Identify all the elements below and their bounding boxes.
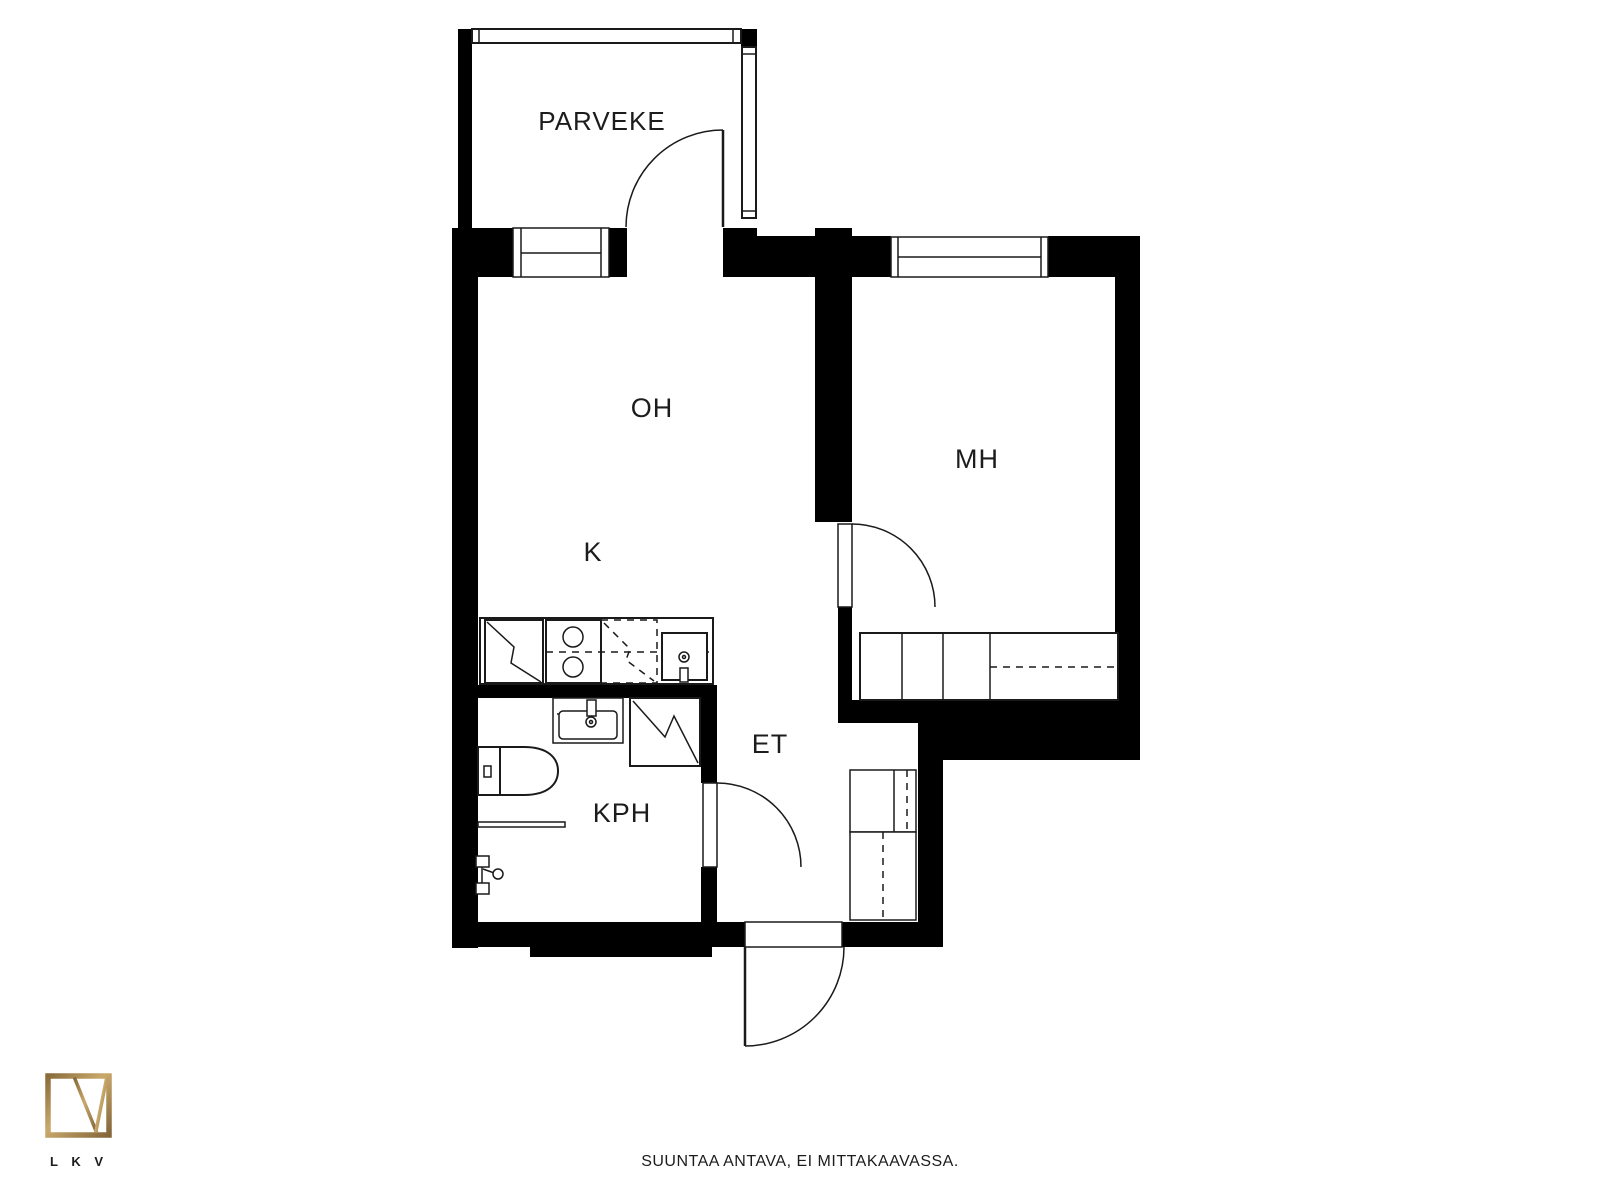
hall-wardrobes xyxy=(850,770,916,920)
living-room-window-icon xyxy=(513,228,609,277)
kitchen-fixtures xyxy=(480,618,713,684)
disclaimer-text: SUUNTAA ANTAVA, EI MITTAKAAVASSA. xyxy=(641,1153,959,1170)
bedroom-closet xyxy=(860,633,1118,700)
towel-rail-icon xyxy=(478,822,565,827)
kitchen-bathroom-wall xyxy=(452,685,717,698)
wardrobe-icon xyxy=(850,832,916,920)
floor-plan: PARVEKE OH K MH ET KPH L K V SUUNTAA ANT… xyxy=(0,0,1600,1200)
bathroom-right-wall-upper xyxy=(701,698,717,783)
bedroom-label: MH xyxy=(955,444,999,474)
bottom-wall-left xyxy=(452,922,745,947)
balcony-label: PARVEKE xyxy=(538,106,665,136)
railing-right xyxy=(742,47,756,218)
washing-machine-icon xyxy=(630,698,700,766)
balcony-corner-post xyxy=(741,29,757,47)
logo-caption: L K V xyxy=(50,1154,108,1169)
wardrobe-icon xyxy=(850,770,916,832)
bedroom-window-icon xyxy=(891,237,1048,277)
bottom-wall-step xyxy=(530,947,712,957)
bedroom-bottom-wall xyxy=(838,700,1140,723)
exterior-wall-chunk xyxy=(943,723,1140,760)
balcony-left-wall xyxy=(458,29,472,228)
kitchen-sink-icon xyxy=(662,633,707,682)
top-wall-mid xyxy=(723,228,757,277)
left-exterior-wall xyxy=(452,228,478,948)
living-room-label: OH xyxy=(631,393,674,423)
living-bedroom-wall-upper xyxy=(815,228,852,522)
bathroom-label: KPH xyxy=(593,798,652,828)
bathroom-right-wall-lower xyxy=(701,867,717,922)
hall-right-wall xyxy=(918,723,943,947)
railing-top xyxy=(472,29,741,43)
bottom-wall-right xyxy=(842,922,918,947)
closet-run xyxy=(860,633,1118,700)
toilet-icon xyxy=(478,747,558,795)
kitchen-label: K xyxy=(583,537,602,567)
hall-label: ET xyxy=(752,729,789,759)
refrigerator-icon xyxy=(485,620,543,683)
page-background xyxy=(0,0,1600,1200)
top-wall-pier xyxy=(609,228,627,277)
bathroom-sink-icon xyxy=(553,698,623,743)
